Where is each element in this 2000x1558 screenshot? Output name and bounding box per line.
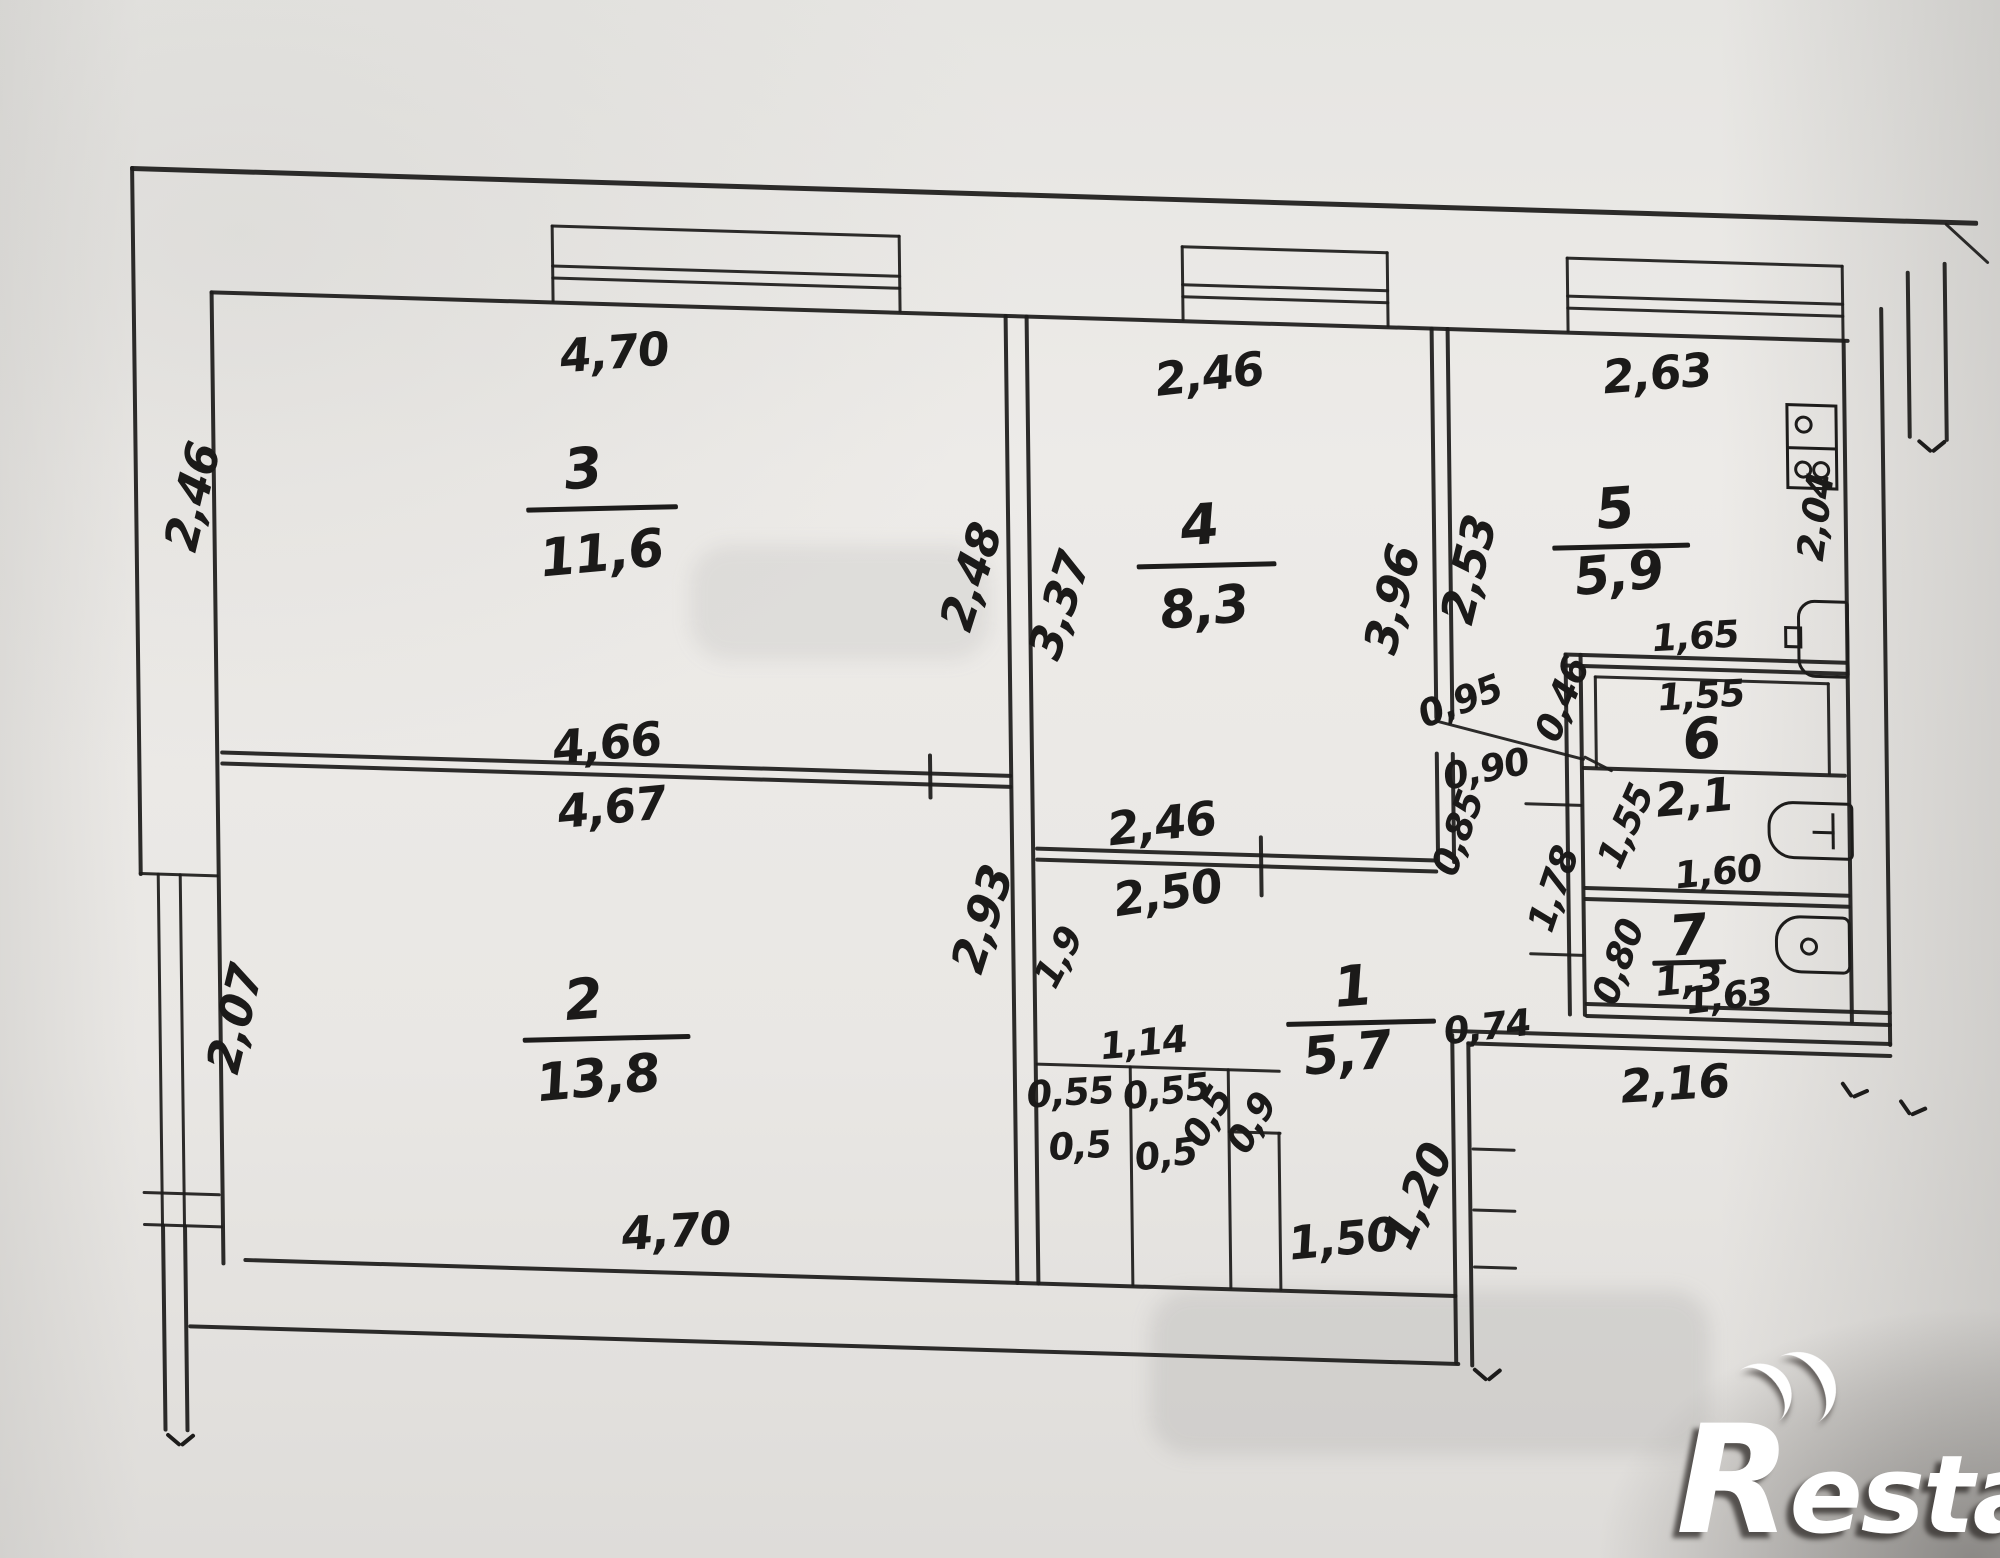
dimension-label: 0,85 bbox=[1423, 785, 1492, 882]
dimension-label: 1,55 bbox=[1589, 777, 1663, 874]
room-4-number: 4 bbox=[1176, 492, 1221, 560]
kitchen-sink-icon bbox=[1797, 599, 1850, 679]
wall-segment bbox=[1025, 315, 1041, 1286]
dimension-label: 1,20 bbox=[1371, 1135, 1464, 1257]
room-4-area: 8,3 bbox=[1156, 574, 1252, 642]
window-frame bbox=[1566, 257, 1844, 268]
room-6-number: 6 bbox=[1679, 706, 1724, 774]
window-frame bbox=[551, 276, 901, 289]
dimension-label: 2,46 bbox=[1104, 791, 1220, 857]
wall-break-arrow-icon bbox=[1837, 1079, 1871, 1105]
wall-segment bbox=[1259, 835, 1264, 897]
wall-segment bbox=[1004, 314, 1020, 1285]
dimension-label: 2,46 bbox=[153, 437, 231, 557]
dimension-label: 1,60 bbox=[1672, 846, 1764, 897]
wall-segment bbox=[130, 166, 143, 876]
wall-segment bbox=[1594, 675, 1598, 768]
wall-segment bbox=[1524, 802, 1582, 807]
toilet-icon bbox=[1775, 915, 1852, 975]
dimension-label: 4,67 bbox=[554, 775, 670, 839]
wall-segment bbox=[1472, 1208, 1516, 1212]
wall-break-arrow-icon bbox=[1917, 437, 1947, 456]
wall-segment bbox=[1466, 1041, 1474, 1367]
room-5-number: 5 bbox=[1592, 475, 1637, 543]
wall-segment bbox=[1906, 271, 1912, 439]
wall-segment bbox=[1529, 952, 1584, 957]
wall-segment bbox=[161, 1224, 168, 1432]
wall-segment bbox=[1277, 1132, 1282, 1291]
dimension-label: 1,65 bbox=[1650, 612, 1741, 660]
room-6-area: 2,1 bbox=[1652, 767, 1737, 828]
wall-segment bbox=[928, 753, 933, 799]
dimension-label: 2,63 bbox=[1600, 342, 1715, 404]
wall-segment bbox=[130, 166, 1978, 226]
dimension-label: 0,80 bbox=[1584, 913, 1653, 1010]
wall-break-arrow-icon bbox=[166, 1431, 196, 1450]
room-3-underline bbox=[526, 504, 678, 512]
wall-segment bbox=[1827, 682, 1831, 775]
dimension-label: 4,66 bbox=[549, 711, 665, 775]
dimension-label: 2,53 bbox=[1430, 510, 1508, 630]
wall-segment bbox=[1879, 307, 1892, 1047]
dimension-label: 3,96 bbox=[1353, 539, 1431, 659]
window-frame bbox=[1181, 295, 1389, 304]
wall-segment bbox=[1473, 1265, 1517, 1269]
dimension-label: 4,70 bbox=[557, 321, 672, 383]
room-3-number: 3 bbox=[560, 435, 605, 503]
wall-break-arrow-icon bbox=[1472, 1365, 1502, 1384]
restate-watermark: Restate bbox=[1598, 1358, 2000, 1558]
dimension-label: 2,46 bbox=[1151, 341, 1267, 407]
room-1-area: 5,7 bbox=[1299, 1020, 1395, 1088]
dimension-label: 1,78 bbox=[1519, 841, 1587, 938]
window-frame bbox=[551, 264, 901, 277]
wall-break-arrow-icon bbox=[1895, 1097, 1929, 1123]
logo-letter-r: R bbox=[1676, 1394, 1790, 1558]
room-1-number: 1 bbox=[1330, 953, 1375, 1021]
wall-segment bbox=[188, 1324, 1460, 1366]
window-frame bbox=[1566, 295, 1844, 306]
window-frame bbox=[1181, 283, 1389, 292]
wall-segment bbox=[1472, 1147, 1516, 1151]
window-frame bbox=[179, 873, 186, 1227]
dimension-label: 1,14 bbox=[1097, 1017, 1189, 1068]
window-frame bbox=[157, 873, 164, 1227]
dimension-label: 2,07 bbox=[196, 959, 274, 1079]
dimension-label: 0,55 bbox=[1024, 1069, 1115, 1117]
wall-segment bbox=[183, 1224, 190, 1432]
bathtub-icon bbox=[1767, 800, 1854, 861]
room-2-underline bbox=[523, 1034, 691, 1043]
dimension-label: 2,50 bbox=[1109, 858, 1227, 927]
room-2-number: 2 bbox=[560, 966, 605, 1034]
dimension-label: 0,5 bbox=[1046, 1123, 1113, 1170]
dimension-label: 0,46 bbox=[1526, 651, 1598, 748]
dimension-label: 2,48 bbox=[929, 516, 1013, 637]
logo-text: estate bbox=[1790, 1433, 2000, 1558]
floor-plan-photo: 4,702,462,632,462,483,373,962,532,041,65… bbox=[0, 0, 2000, 1558]
wall-segment bbox=[1430, 327, 1439, 720]
window-frame bbox=[1181, 245, 1389, 254]
wall-segment bbox=[210, 290, 226, 1265]
room-5-area: 5,9 bbox=[1570, 540, 1666, 608]
room-2-area: 13,8 bbox=[532, 1043, 663, 1114]
window-frame bbox=[143, 1191, 221, 1196]
window-frame bbox=[551, 224, 555, 302]
wall-segment bbox=[1450, 1033, 1458, 1365]
dimension-label: 2,16 bbox=[1618, 1053, 1732, 1113]
room-4-underline bbox=[1137, 561, 1277, 569]
wall-segment bbox=[1943, 262, 1949, 442]
apartment-floor-plan: 4,702,462,632,462,483,373,962,532,041,65… bbox=[130, 160, 2000, 1516]
wall-segment bbox=[1583, 897, 1850, 909]
window-frame bbox=[551, 224, 901, 237]
window-frame bbox=[1566, 307, 1844, 318]
wall-segment bbox=[243, 1258, 1457, 1298]
room-7-area: 1,3 bbox=[1652, 954, 1725, 1006]
wall-segment bbox=[1944, 222, 1990, 264]
dimension-label: 4,70 bbox=[619, 1201, 733, 1261]
room-3-area: 11,6 bbox=[536, 518, 667, 589]
